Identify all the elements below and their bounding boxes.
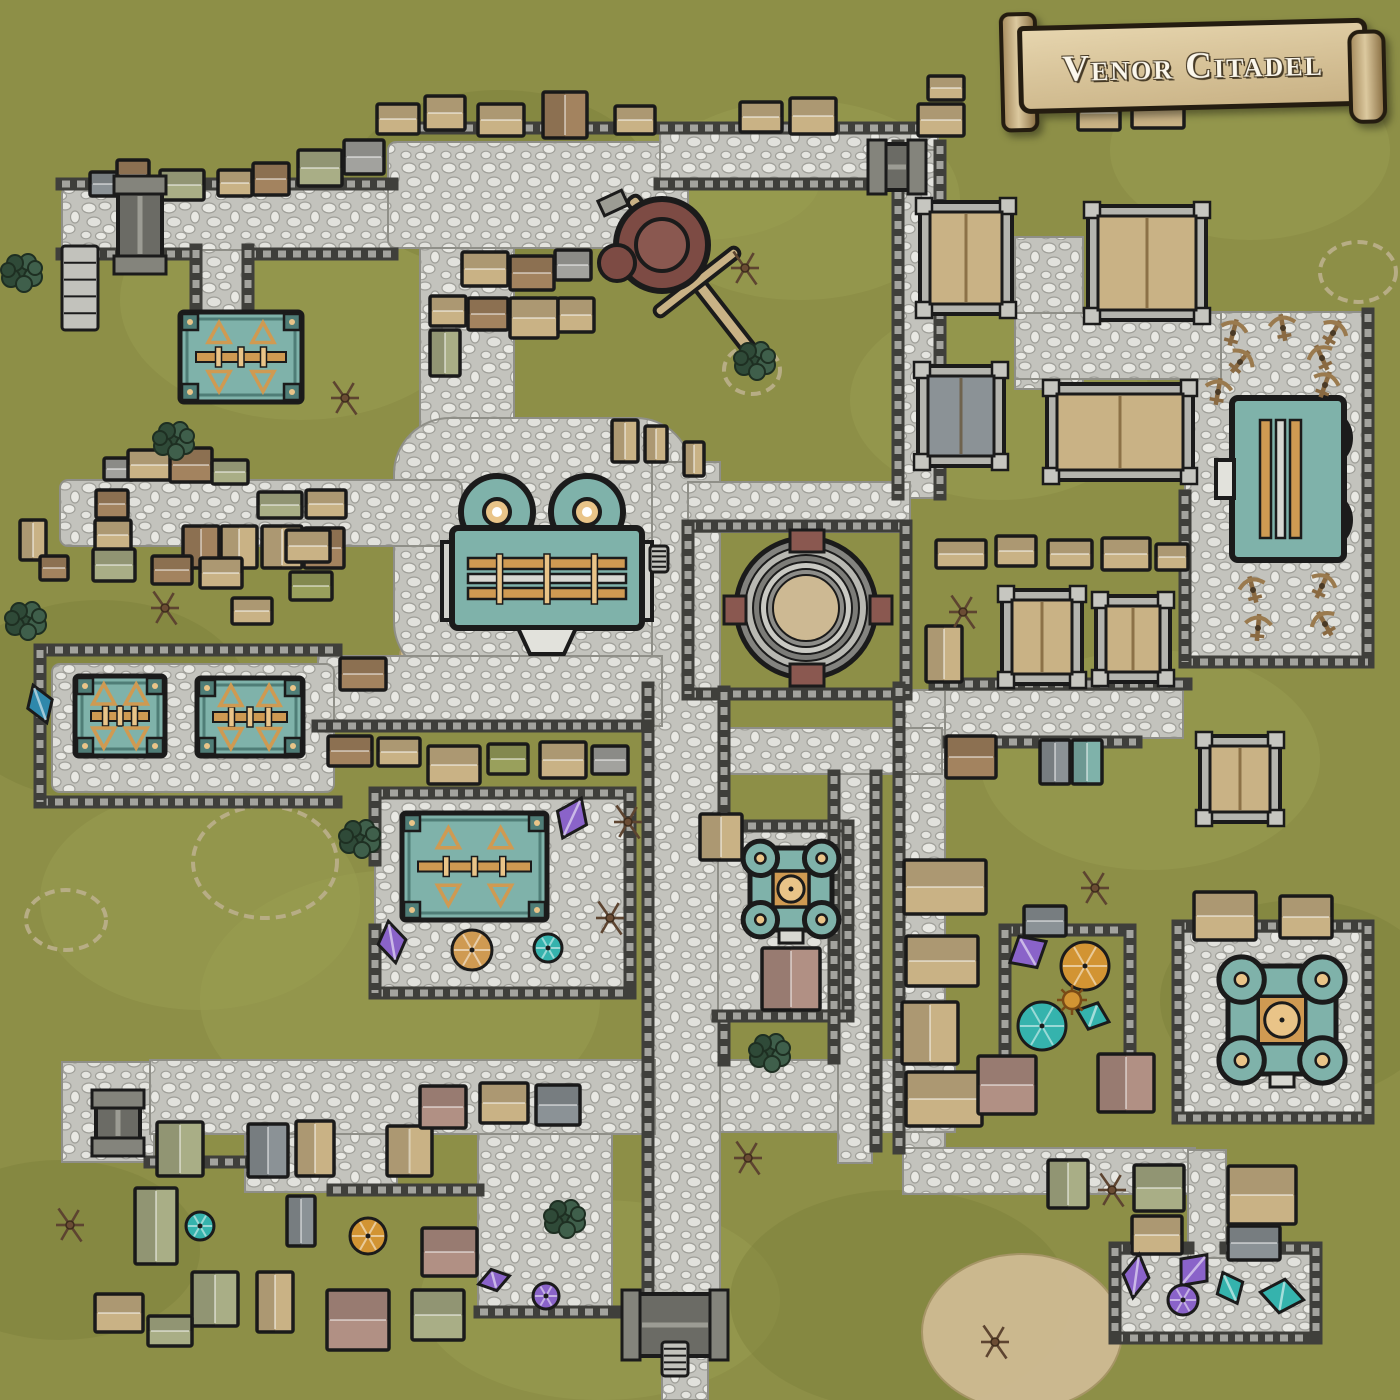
building-barracks [402, 813, 547, 920]
building-manor [1043, 380, 1197, 484]
tree-trunk [741, 264, 749, 272]
keep-steps [518, 628, 576, 654]
tree-foliage [764, 1056, 780, 1072]
building-house [148, 1316, 192, 1346]
beam-tick [266, 707, 272, 727]
roof-shade [1048, 540, 1092, 554]
roof-shade [480, 1083, 528, 1103]
roof-shade [290, 572, 332, 586]
parasol-peak [546, 946, 551, 951]
corner-boss [289, 319, 295, 325]
roof-shade [592, 746, 628, 760]
roof-shade [762, 948, 791, 1010]
tree-trunk [991, 1338, 999, 1346]
roof-shade [425, 96, 465, 113]
tree-trunk [1108, 1186, 1116, 1194]
parasol-tent [1168, 1285, 1198, 1315]
corner-boss [204, 685, 210, 691]
map-title: Venor Citadel [1062, 41, 1325, 90]
building-house [340, 658, 386, 690]
building-house [212, 460, 248, 484]
roof-shade [95, 520, 131, 535]
building-house [1280, 896, 1332, 938]
building-house [218, 170, 252, 196]
arena-gate [790, 664, 824, 686]
building-house [1072, 740, 1102, 784]
building-house [615, 106, 655, 134]
roof-shade [1228, 1226, 1280, 1243]
building-house [902, 1002, 958, 1064]
building-house [20, 520, 46, 560]
building-house [152, 556, 192, 584]
building-manor [1092, 592, 1174, 686]
pine-tree [5, 602, 46, 640]
building-house [135, 1188, 177, 1264]
roof-shade [946, 736, 996, 757]
building-house [378, 738, 420, 766]
roof-shade [412, 1290, 464, 1315]
roof-shade [286, 530, 330, 546]
building-house [157, 1122, 203, 1176]
roof-shade [40, 556, 68, 568]
building-house [412, 1290, 464, 1340]
tree-foliage [559, 1222, 575, 1238]
building-house [462, 252, 508, 286]
roof-shade [328, 736, 372, 751]
tower-boss [1316, 1054, 1330, 1068]
building-house [468, 298, 508, 330]
building-house [232, 598, 272, 624]
building-house [926, 626, 962, 682]
building-house [387, 1126, 432, 1176]
roof-shade [1228, 1166, 1296, 1195]
building-house [510, 298, 558, 338]
roof-shade [928, 76, 964, 88]
building-house [480, 1083, 528, 1123]
cart [62, 246, 98, 330]
beam-tick [261, 347, 267, 367]
building-house [40, 556, 68, 580]
tower-boss [1235, 973, 1249, 987]
building-house [478, 104, 524, 136]
roof-shade [978, 1056, 1036, 1085]
roof-shade [95, 1294, 143, 1313]
parasol-peak [198, 1224, 203, 1229]
building-house [510, 256, 554, 290]
beam-tick [216, 347, 222, 367]
roof-shade [700, 814, 721, 860]
tree-foliage [776, 1041, 790, 1055]
tree-trunk [161, 604, 169, 612]
corner-boss [290, 685, 296, 691]
building-house [1228, 1226, 1280, 1260]
beam-tick [117, 706, 123, 726]
pine-tree [544, 1200, 585, 1238]
building-house [946, 736, 996, 778]
building-manor [916, 198, 1016, 318]
building-house [1194, 892, 1256, 940]
parasol-peak [1040, 1024, 1045, 1029]
roof-shade [612, 420, 625, 462]
building-house [287, 1196, 315, 1246]
corner-boss [290, 743, 296, 749]
tower-boss [755, 853, 765, 863]
building-house [1132, 1216, 1182, 1254]
pine-tree [153, 422, 194, 460]
dirt-patch [922, 1254, 1122, 1400]
roof-shade [1134, 1165, 1184, 1188]
gatehouse [114, 176, 166, 274]
tree-trunk [606, 914, 614, 922]
roof-shade [1280, 896, 1332, 917]
building-barracks [75, 676, 165, 756]
gate-tower [92, 1090, 144, 1108]
roof-shade [327, 1290, 389, 1320]
roof-shade [1040, 740, 1055, 784]
roof-shade [117, 160, 149, 175]
keep-body [1232, 398, 1344, 560]
corner-boss [289, 389, 295, 395]
roof-shade [430, 330, 445, 376]
banner-scroll-roll-right [1347, 29, 1387, 124]
building-house [306, 490, 346, 518]
fire [1063, 991, 1081, 1009]
roof-shade [344, 140, 384, 157]
center-fort [743, 841, 839, 943]
roof-shade [262, 526, 282, 568]
gate-tower [114, 256, 166, 274]
building-house [328, 736, 372, 766]
building-house [93, 549, 135, 581]
building-house [918, 104, 964, 136]
building-house [248, 1124, 288, 1177]
roof-shade [926, 626, 944, 682]
roof-shade [157, 1122, 180, 1176]
tree-foliage [20, 624, 36, 640]
building-manor [914, 362, 1008, 470]
roof-shade [93, 549, 135, 565]
tree-foliage [544, 1209, 558, 1223]
campfire [1057, 985, 1087, 1015]
banner-parchment: Venor Citadel [1017, 18, 1369, 115]
tree-foliage [28, 261, 42, 275]
building-house [344, 140, 384, 174]
roof-shade [918, 104, 964, 120]
tree-trunk [66, 1221, 74, 1229]
gold-beam [1260, 420, 1271, 538]
roof-shade [232, 598, 272, 611]
building-house [928, 76, 964, 100]
beam-tick [544, 554, 550, 604]
roof-shade [253, 163, 289, 179]
building-house [1040, 740, 1070, 784]
beam-tick [103, 706, 109, 726]
citadel-map [0, 0, 1400, 1400]
arena-gate [870, 596, 892, 624]
tower-boss [817, 853, 827, 863]
pine-tree [734, 342, 775, 380]
building-house [298, 150, 342, 186]
roof-shade [1156, 544, 1188, 557]
road [196, 250, 248, 316]
building-house [192, 1272, 238, 1326]
roof-shade [287, 1196, 301, 1246]
building-house [555, 250, 591, 280]
road [720, 728, 942, 774]
building-house [253, 163, 289, 195]
roof-shade [1098, 1054, 1126, 1112]
roof-shade [540, 742, 586, 760]
roof-shade [218, 170, 252, 183]
gate-tower [908, 140, 926, 194]
corner-boss [204, 743, 210, 749]
roof-shade [615, 106, 655, 120]
parasol-tent [534, 934, 562, 962]
windmill-cap [636, 219, 688, 271]
roof-shade [340, 658, 386, 674]
building-house [558, 298, 594, 332]
tree-foliage [749, 364, 765, 380]
building-house [488, 744, 528, 774]
parasol-tent [186, 1212, 214, 1240]
tree-foliage [16, 276, 32, 292]
road [935, 690, 1183, 738]
arena-gate [724, 596, 746, 624]
building-barracks [180, 312, 302, 402]
tree-foliage [354, 842, 370, 858]
roof-shade [430, 296, 466, 311]
roof-shade [387, 1126, 410, 1176]
corner-boss [82, 743, 88, 749]
roof-shade [462, 252, 508, 269]
beam-tick [132, 706, 138, 726]
roof-shade [536, 1085, 580, 1105]
building-house [684, 442, 704, 476]
roof-shade [684, 442, 694, 476]
building-house [645, 426, 667, 462]
cart-bed [62, 246, 98, 330]
gatehouse [92, 1090, 144, 1156]
gate-tower [868, 140, 886, 194]
building-house [420, 1086, 466, 1128]
tree-foliage [153, 431, 167, 445]
windmill-annex [599, 245, 635, 281]
parasol-tent [1018, 1002, 1066, 1050]
building-house [540, 742, 586, 778]
roof-shade [298, 150, 342, 168]
roof-shade [306, 490, 346, 504]
tree-foliage [1, 263, 15, 277]
roof-shade [96, 490, 128, 504]
tower-boss [755, 915, 765, 925]
roof-shade [1102, 538, 1150, 554]
roof-shade [790, 98, 836, 116]
building-house [425, 96, 465, 130]
building-house [1228, 1166, 1296, 1224]
parasol-tent [350, 1218, 386, 1254]
roof-shade [1132, 1216, 1182, 1235]
tree-trunk [959, 608, 967, 616]
corner-boss [152, 743, 158, 749]
tree-foliage [339, 829, 353, 843]
roof-shade [478, 104, 524, 120]
tower-boss [1235, 1054, 1249, 1068]
roof-shade [192, 1272, 215, 1326]
parasol-tent [533, 1283, 559, 1309]
building-house [1048, 540, 1092, 568]
beam-tick [500, 857, 506, 877]
roof-shade [212, 460, 248, 472]
keep-steps [1216, 460, 1234, 498]
tower-eye [582, 507, 592, 517]
beam-tick [472, 857, 478, 877]
gate-tower [92, 1138, 144, 1156]
building-house [904, 860, 986, 914]
building-manor [1084, 202, 1210, 324]
roof-shade [1048, 1160, 1068, 1208]
building-house [1098, 1054, 1154, 1112]
building-house [286, 530, 330, 562]
tree-foliage [366, 827, 380, 841]
tree-foliage [761, 349, 775, 363]
roof-shade [902, 1002, 930, 1064]
arena-gate [790, 530, 824, 552]
roof-shade [248, 1124, 268, 1177]
roof-shade [135, 1188, 156, 1264]
roof-shade [200, 558, 242, 573]
beam-tick [497, 554, 503, 604]
corner-boss [409, 907, 415, 913]
building-manor [998, 586, 1086, 688]
building-barracks [197, 678, 303, 756]
building-house [1156, 544, 1188, 570]
roof-shade [152, 556, 192, 570]
corner-boss [82, 683, 88, 689]
roof-shade [555, 250, 591, 265]
roof-shade [488, 744, 528, 759]
gold-beam [1290, 420, 1301, 538]
building-house [1102, 538, 1150, 570]
roof-shade [20, 520, 33, 560]
tower-boss [1316, 973, 1330, 987]
gatehouse [868, 140, 926, 194]
stone-beam [1276, 420, 1285, 538]
tower-eye [492, 507, 502, 517]
parasol-tent [1061, 942, 1109, 990]
parasol-peak [1181, 1298, 1186, 1303]
ballista-base [1250, 635, 1264, 636]
building-house [612, 420, 638, 462]
gate-tower [710, 1290, 728, 1360]
building-house [95, 520, 131, 550]
corner-boss [152, 683, 158, 689]
ballista-base [1210, 399, 1224, 401]
east-keep [1216, 398, 1350, 560]
roof-shade [1024, 906, 1066, 921]
tree-foliage [734, 351, 748, 365]
roof-shade [1194, 892, 1256, 916]
pine-tree [749, 1034, 790, 1072]
tree-trunk [341, 394, 349, 402]
roof-shade [148, 1316, 192, 1331]
roof-shade [936, 540, 986, 554]
cart [650, 546, 668, 572]
building-house [1048, 1160, 1088, 1208]
parasol-peak [544, 1294, 549, 1299]
roof-shade [740, 102, 782, 117]
building-house [936, 540, 986, 568]
roof-shade [428, 746, 480, 765]
tree-trunk [744, 1154, 752, 1162]
building-house [592, 746, 628, 774]
building-house [906, 936, 978, 986]
building-house [96, 490, 128, 518]
dome-peak [1280, 1018, 1285, 1023]
building-house [430, 296, 466, 326]
tree-foliage [5, 611, 19, 625]
corner-boss [187, 319, 193, 325]
beam-tick [238, 347, 244, 367]
parasol-tent [452, 930, 492, 970]
building-house [430, 330, 460, 376]
tree-foliage [749, 1043, 763, 1057]
road [62, 188, 392, 254]
tower-boss [817, 915, 827, 925]
building-house [740, 102, 782, 132]
building-house [790, 98, 836, 134]
parasol-peak [366, 1234, 371, 1239]
building-house [762, 948, 820, 1010]
pine-tree [1, 254, 42, 292]
roof-shade [906, 1072, 982, 1099]
arena-ring [773, 575, 839, 641]
building-house [296, 1121, 334, 1176]
tree-foliage [571, 1207, 585, 1221]
cart-bed [650, 546, 668, 572]
tree-trunk [1091, 884, 1099, 892]
building-house [996, 536, 1036, 566]
roof-shade [468, 298, 508, 314]
ballista-base [1277, 335, 1291, 337]
roof-shade [377, 104, 419, 119]
roof-shade [558, 298, 594, 315]
road [1015, 313, 1221, 379]
south-fort [1219, 957, 1345, 1087]
beam-tick [443, 857, 449, 877]
tree-foliage [168, 444, 184, 460]
building-house [258, 492, 302, 518]
fort-steps [1270, 1074, 1294, 1087]
roof-shade [420, 1086, 466, 1107]
grass-patch [40, 790, 360, 1010]
building-house [1134, 1165, 1184, 1211]
corner-boss [534, 907, 540, 913]
roof-shade [1072, 740, 1087, 784]
building-house [377, 104, 419, 134]
corner-boss [409, 820, 415, 826]
cart [662, 1342, 688, 1376]
roof-shade [296, 1121, 315, 1176]
building-house [257, 1272, 293, 1332]
beam-tick [591, 554, 597, 604]
building-house [1024, 906, 1066, 936]
building-house [327, 1290, 389, 1350]
tree-trunk [624, 818, 632, 826]
roof-shade [904, 860, 986, 887]
gate-tower [622, 1290, 640, 1360]
building-house [95, 1294, 143, 1332]
building-house [906, 1072, 982, 1126]
